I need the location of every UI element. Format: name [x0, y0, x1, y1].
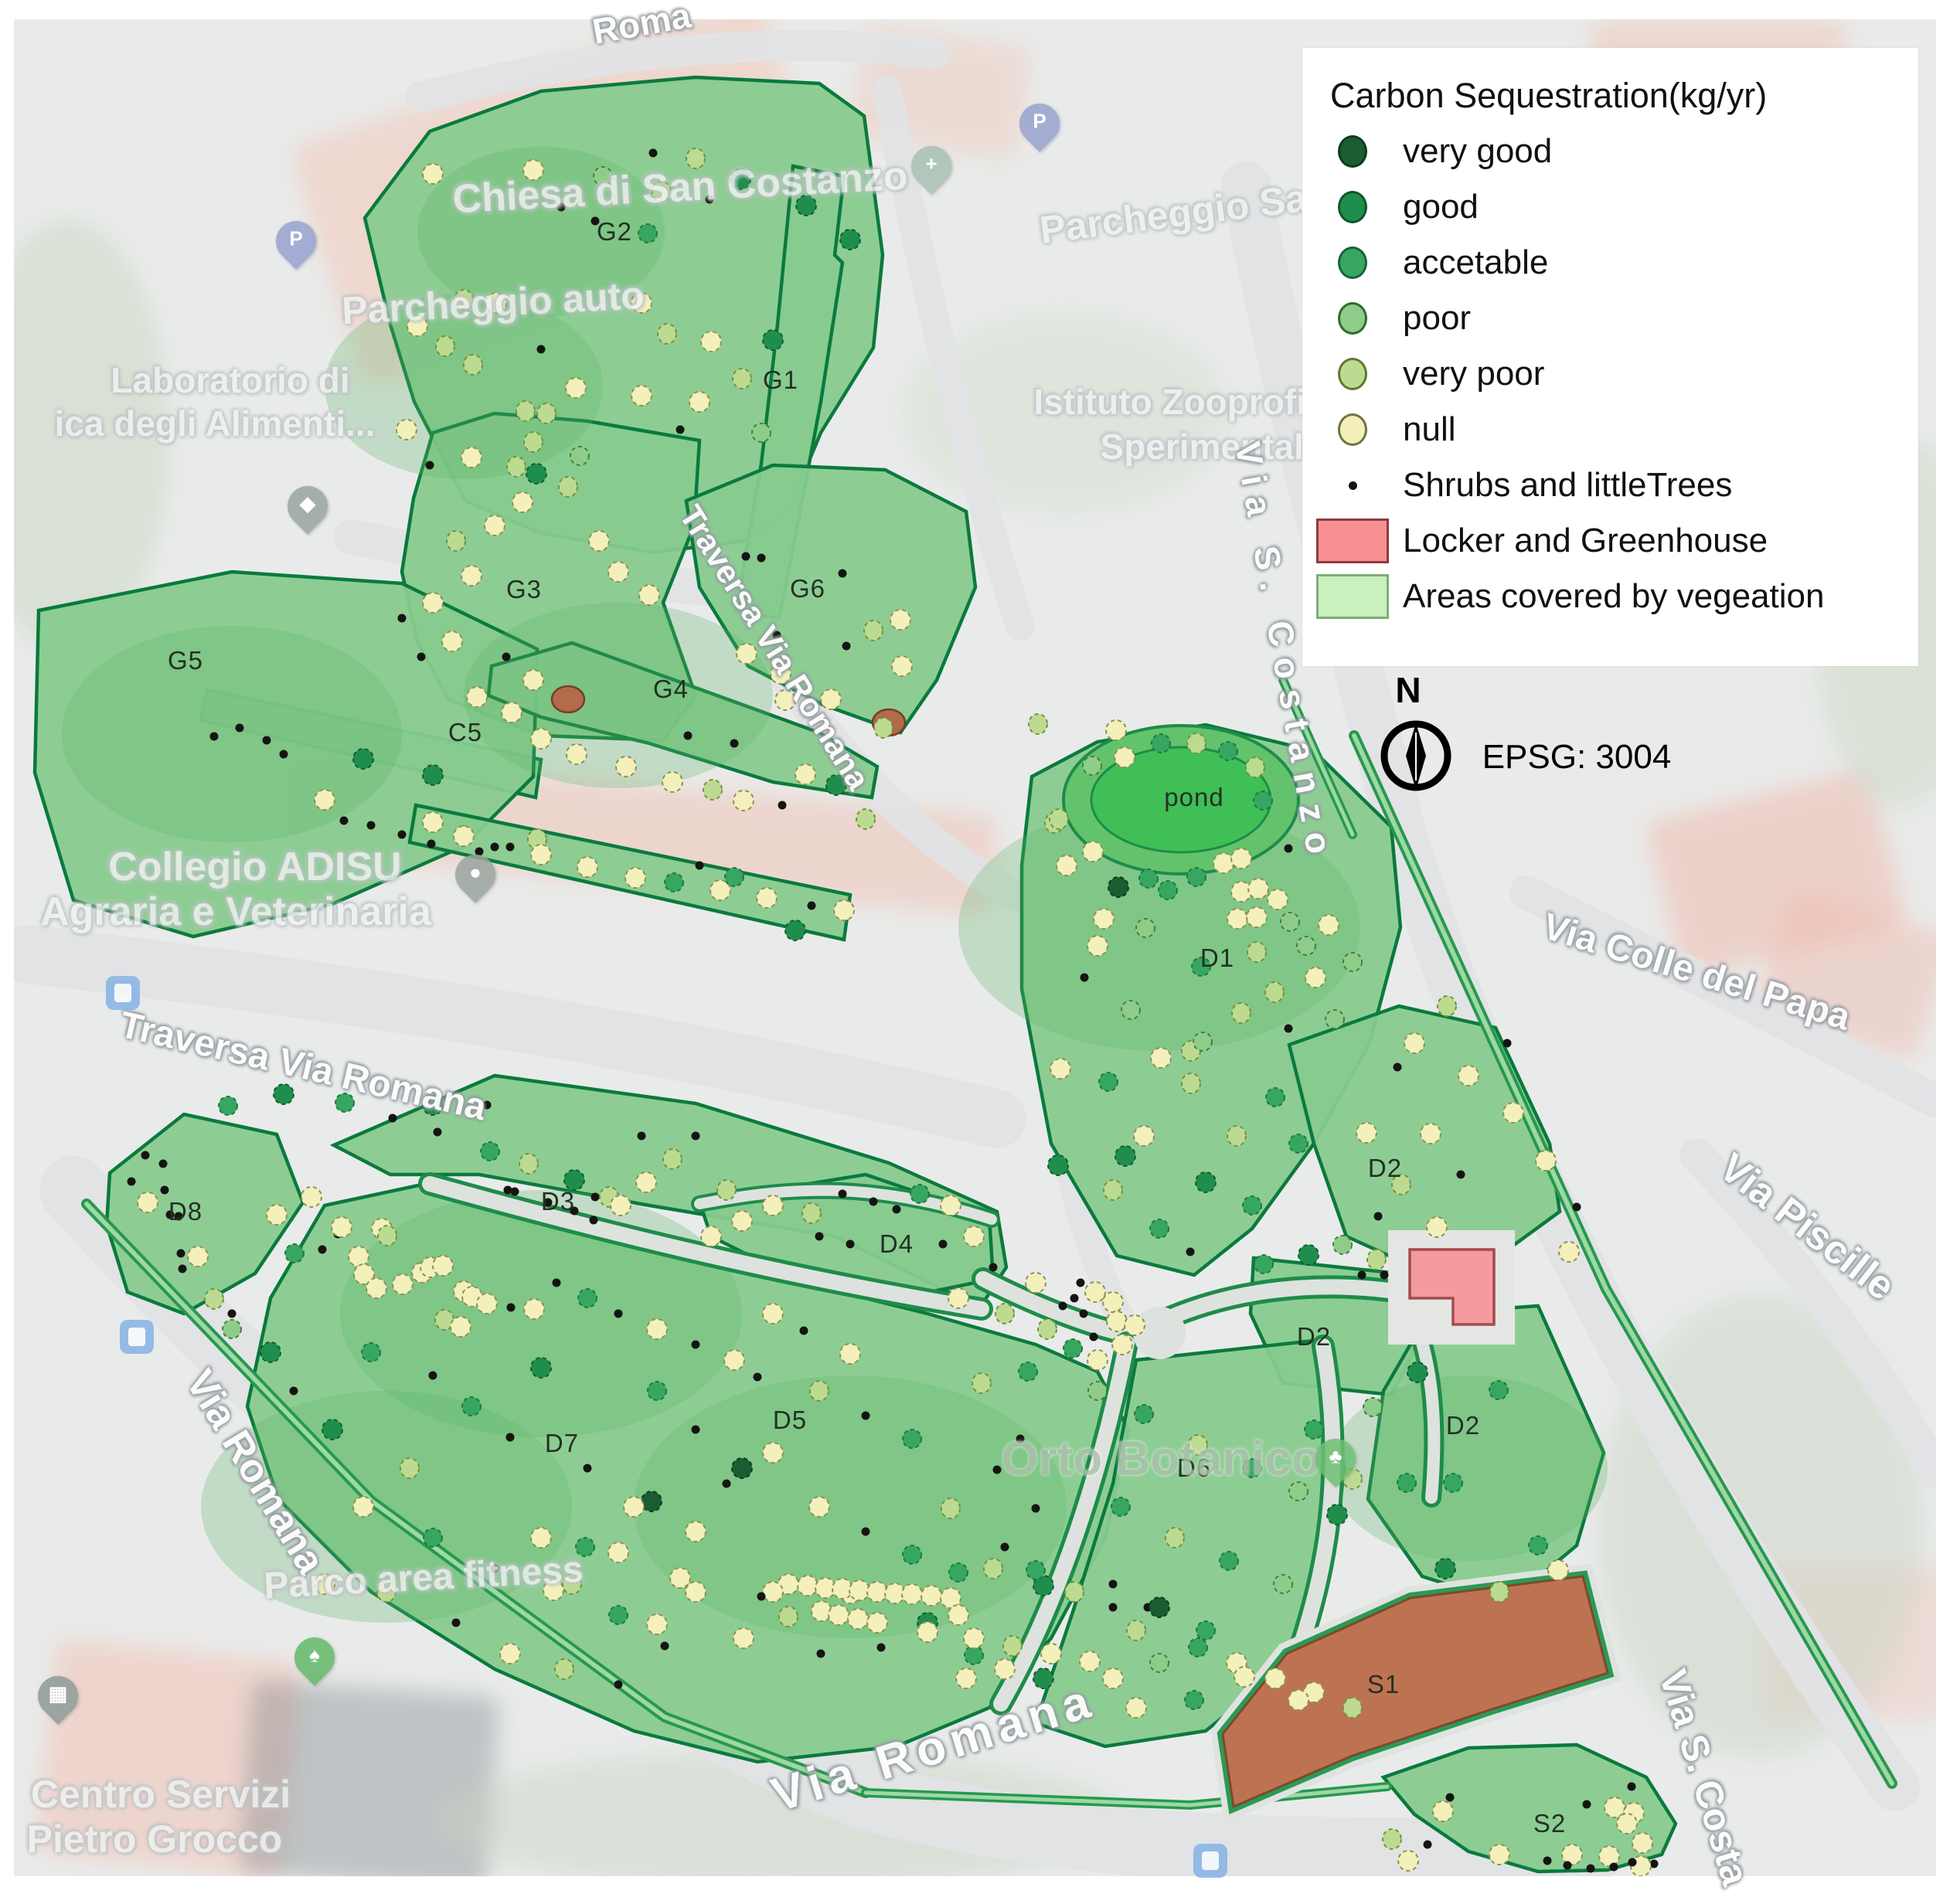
tree-null: [353, 1497, 373, 1517]
shrub-littletree: [877, 1644, 886, 1652]
tree-very-poor: [1029, 714, 1047, 734]
tree-null: [315, 790, 335, 810]
region-label-D1: D1: [1200, 943, 1234, 973]
tree-poor: [752, 423, 771, 442]
tree-very-poor: [524, 432, 543, 452]
shrub-littletree: [590, 1216, 598, 1225]
tree-null: [701, 331, 721, 352]
poi-green-pin-icon: ♣: [1315, 1439, 1356, 1479]
tree-accetable: [1196, 1621, 1215, 1640]
shrub-littletree: [1503, 1039, 1512, 1048]
tree-very-poor: [1166, 1528, 1184, 1548]
locker-symbol-icon: [1302, 518, 1403, 563]
epsg-label: EPSG: 3004: [1482, 738, 1672, 777]
tree-very-poor: [1265, 982, 1284, 1002]
tree-good: [1196, 1172, 1216, 1192]
tree-null: [625, 868, 645, 888]
tree-very-poor: [810, 1381, 829, 1401]
locker-greenhouse-building: [1388, 1230, 1515, 1345]
tree-very-good: [1108, 877, 1128, 897]
tree-good: [763, 330, 783, 350]
street-label: ica degli Alimenti...: [55, 403, 376, 444]
shrub-littletree: [692, 1132, 700, 1141]
tree-null: [1536, 1151, 1556, 1171]
tree-null: [267, 1205, 287, 1225]
tree-null: [442, 631, 462, 651]
tree-null: [890, 610, 910, 630]
shrub-littletree: [1573, 1203, 1581, 1212]
church-pin-icon: +: [911, 146, 951, 186]
region-label-G3: G3: [506, 575, 542, 604]
tree-null: [848, 1609, 868, 1629]
shrub-littletree: [427, 840, 436, 848]
tree-null: [477, 1294, 497, 1314]
shrub-littletree: [684, 732, 693, 740]
tree-null: [763, 1304, 783, 1324]
shrub-littletree: [614, 1681, 623, 1689]
shrub-littletree: [507, 1304, 516, 1312]
tree-good: [840, 229, 860, 250]
tree-null: [451, 1317, 471, 1337]
tree-very-poor: [1367, 1249, 1386, 1270]
tree-good: [1048, 1155, 1068, 1175]
transit-stop-icon: [1193, 1844, 1227, 1878]
road-via-piscille: [1696, 1155, 1936, 1472]
tree-null: [1087, 1350, 1108, 1370]
tree-null: [1103, 1292, 1123, 1312]
shrub-littletree: [800, 1327, 808, 1335]
shrub-littletree: [1109, 1580, 1118, 1589]
tree-accetable: [1219, 742, 1237, 760]
tree-null: [1115, 747, 1135, 767]
tree-accetable: [285, 1244, 304, 1263]
street-label: Sperimentale: [1101, 426, 1324, 467]
tree-accetable: [1529, 1536, 1547, 1555]
tree-very-good: [1149, 1597, 1169, 1617]
tree-null: [686, 1521, 706, 1542]
tree-very-poor: [1182, 1073, 1200, 1093]
street-label: Pietro Grocco: [27, 1817, 283, 1861]
tree-null: [941, 1195, 961, 1215]
legend-item-poor: poor: [1302, 291, 1918, 346]
tree-null: [917, 1622, 938, 1642]
tree-accetable: [481, 1142, 499, 1161]
shrub-littletree: [417, 653, 426, 661]
tree-very-poor: [205, 1289, 223, 1309]
tree-very-poor: [984, 1559, 1002, 1579]
shrub-littletree: [502, 653, 511, 661]
tree-null: [964, 1628, 984, 1648]
tree-poor: [1274, 1575, 1292, 1593]
tree-very-poor: [1490, 1582, 1509, 1602]
tree-accetable: [219, 1096, 237, 1115]
region-label-S2: S2: [1533, 1809, 1566, 1838]
tree-very-poor: [555, 1659, 573, 1679]
tree-null: [1213, 853, 1234, 873]
shrub-littletree: [290, 1387, 298, 1396]
street-label: Agraria e Veterinaria: [40, 889, 431, 935]
tree-accetable: [1019, 1362, 1037, 1381]
tree-null: [1125, 1315, 1145, 1335]
shrub-littletree: [236, 724, 244, 733]
tree-poor: [1083, 756, 1101, 775]
tree-very-poor: [1227, 1126, 1246, 1146]
street-label: Laboratorio di: [111, 359, 349, 401]
region-label-G2: G2: [597, 217, 632, 246]
tree-null: [608, 1542, 628, 1562]
tree-null: [1234, 1667, 1254, 1687]
tree-null: [1050, 1059, 1070, 1079]
tree-null: [763, 1582, 783, 1602]
tree-null: [647, 1319, 667, 1339]
tree-very-poor: [464, 355, 482, 375]
street-label: Istituto Zooprofil: [1033, 381, 1315, 423]
tree-null: [1319, 915, 1339, 935]
tree-very-poor: [519, 1154, 538, 1174]
shrub-littletree: [862, 1528, 870, 1536]
tree-null: [921, 1586, 941, 1606]
tree-null: [1080, 1651, 1100, 1671]
tree-null: [188, 1246, 208, 1266]
tree-good: [1435, 1559, 1455, 1579]
parking-pin-icon: P: [276, 221, 316, 261]
tree-very-poor: [1187, 733, 1206, 753]
shrub-littletree: [754, 1373, 762, 1382]
tree-very-poor: [856, 809, 875, 829]
tree-null: [423, 593, 443, 613]
tree-null: [1107, 1311, 1127, 1331]
tree-null: [1288, 1690, 1309, 1710]
tree-null: [1599, 1846, 1619, 1866]
tree-null: [1562, 1844, 1582, 1865]
shrub-littletree: [1070, 1294, 1079, 1303]
shrub-littletree: [1610, 1863, 1618, 1872]
tree-very-poor: [447, 531, 465, 551]
shrub-littletree: [161, 1186, 169, 1195]
shrub-littletree: [1285, 1025, 1293, 1033]
shrub-littletree: [280, 750, 288, 759]
tree-null: [867, 1613, 887, 1633]
region-label-pond: pond: [1164, 783, 1223, 812]
shrub-littletree: [1077, 1279, 1085, 1287]
shrub-littletree: [389, 1114, 397, 1123]
tree-null: [301, 1187, 322, 1207]
tree-null: [1112, 1334, 1132, 1355]
legend-item-very-poor: very poor: [1302, 346, 1918, 402]
tree-null: [577, 857, 597, 877]
tree-null: [849, 1580, 870, 1600]
tree-null: [454, 826, 474, 846]
tree-null: [631, 386, 652, 406]
shrub-littletree: [504, 1186, 512, 1195]
tree-null: [829, 1605, 849, 1625]
tree-good: [1327, 1504, 1347, 1525]
tree-very-good: [732, 1458, 752, 1478]
shrub-littletree: [1285, 845, 1293, 853]
tree-very-poor: [436, 336, 454, 356]
tree-null: [733, 790, 754, 811]
tree-good: [260, 1342, 281, 1362]
tree-null: [834, 900, 854, 920]
legend-item-accetable: accetable: [1302, 235, 1918, 291]
tree-null: [467, 687, 487, 707]
tree-null: [670, 1568, 690, 1588]
tree-good: [1298, 1245, 1319, 1265]
tree-null: [892, 656, 912, 676]
tree-null: [1489, 1844, 1509, 1865]
shrub-littletree: [692, 1426, 700, 1434]
legend-items: very goodgoodaccetablepoorvery poornullS…: [1302, 124, 1918, 624]
transit-stop-icon: [120, 1320, 154, 1354]
region-label-G4: G4: [653, 675, 689, 704]
shrub-littletree: [426, 461, 434, 470]
shrub-littletree: [398, 831, 407, 839]
tree-null: [1026, 1273, 1046, 1293]
tree-null: [1057, 855, 1077, 875]
shrub-littletree: [179, 1265, 187, 1273]
tree-null: [624, 1497, 644, 1517]
tree-very-poor: [1038, 1319, 1057, 1339]
tree-accetable: [362, 1343, 380, 1362]
tree-null: [1248, 879, 1268, 899]
region-label-C5: C5: [448, 718, 482, 747]
shrub-littletree: [893, 1205, 901, 1214]
tree-null: [1458, 1066, 1479, 1086]
tree-null: [393, 1274, 413, 1294]
shrub-littletree: [506, 1433, 515, 1442]
tree-null: [732, 1211, 752, 1231]
tree-accetable: [1189, 1638, 1207, 1657]
tree-very-poor: [802, 1203, 821, 1223]
accetable-symbol-icon: [1302, 246, 1403, 279]
tree-null: [485, 515, 505, 535]
tree-null: [1305, 967, 1326, 988]
tree-accetable: [1111, 1498, 1130, 1516]
tree-poor: [1281, 913, 1299, 931]
shrub-littletree: [1374, 1212, 1383, 1221]
shrub-littletree: [614, 1310, 623, 1318]
legend: Carbon Sequestration(kg/yr) very goodgoo…: [1302, 48, 1918, 666]
tree-poor: [570, 447, 589, 465]
shrub-littletree: [1059, 1302, 1067, 1311]
tree-null: [396, 420, 417, 440]
good-symbol-icon: [1302, 191, 1403, 223]
region-label-D2: D2: [1297, 1322, 1331, 1351]
shrub-littletree: [1001, 1543, 1009, 1552]
tree-pin-icon: ♠: [294, 1637, 335, 1678]
tree-null: [757, 888, 777, 908]
tree-accetable: [1185, 1691, 1203, 1709]
shrubs-symbol-icon: [1302, 481, 1403, 490]
tree-very-poor: [1003, 1636, 1022, 1656]
tree-very-poor: [941, 1498, 960, 1518]
tree-null: [1559, 1242, 1579, 1262]
tree-accetable: [725, 868, 744, 886]
tree-accetable: [1266, 1088, 1285, 1107]
shrub-littletree: [870, 1198, 878, 1206]
legend-title: Carbon Sequestration(kg/yr): [1330, 76, 1918, 116]
tree-null: [1247, 907, 1267, 927]
shrub-littletree: [939, 1240, 948, 1249]
shrub-littletree: [1628, 1783, 1636, 1791]
shrub-littletree: [649, 149, 658, 158]
tree-accetable: [903, 1545, 921, 1564]
tree-null: [689, 392, 710, 412]
shrub-littletree: [1358, 1271, 1366, 1280]
tree-accetable: [462, 1397, 481, 1416]
tree-very-poor: [507, 457, 526, 477]
shrub-littletree: [429, 1372, 437, 1380]
shrub-littletree: [1628, 1858, 1637, 1867]
tree-good: [1115, 1146, 1135, 1166]
tree-null: [1433, 1801, 1453, 1821]
tree-null: [763, 1195, 783, 1215]
tree-poor: [1136, 919, 1155, 937]
shrub-littletree: [318, 1246, 327, 1254]
tree-accetable: [1444, 1474, 1462, 1492]
tree-null: [423, 164, 443, 184]
shrub-littletree: [1457, 1171, 1465, 1179]
tree-poor: [1343, 953, 1362, 971]
tree-null: [995, 1659, 1015, 1679]
tree-null: [1265, 1668, 1285, 1688]
vegetation-texture: [62, 626, 402, 842]
shrub-littletree: [817, 1650, 825, 1658]
tree-null: [1268, 889, 1288, 909]
tree-very-poor: [1383, 1829, 1401, 1849]
tree-null: [1094, 909, 1114, 929]
tree-null: [1106, 720, 1126, 740]
shrub-littletree: [537, 345, 546, 354]
shrub-littletree: [367, 821, 376, 830]
tree-very-poor: [1438, 996, 1456, 1016]
shrub-littletree: [452, 1619, 461, 1627]
tree-null: [608, 562, 628, 582]
shrub-littletree: [228, 1310, 237, 1318]
tree-accetable: [1187, 868, 1206, 886]
shrub-littletree: [177, 1249, 185, 1258]
shrub-littletree: [1186, 1248, 1195, 1256]
tree-very-poor: [663, 1149, 682, 1169]
tree-null: [1126, 1698, 1146, 1718]
tree-very-poor: [1246, 757, 1264, 777]
tree-null: [1404, 1033, 1424, 1053]
shrub-littletree: [723, 1480, 731, 1488]
tree-null: [1421, 1124, 1441, 1144]
tree-null: [964, 1226, 984, 1246]
place-pin-icon: ●: [455, 855, 495, 895]
region-label-D2: D2: [1446, 1411, 1480, 1440]
tree-accetable: [1397, 1474, 1416, 1492]
tree-null: [531, 1528, 551, 1548]
region-label-S1: S1: [1367, 1670, 1400, 1699]
tree-very-poor: [1127, 1620, 1145, 1640]
tree-null: [686, 1582, 706, 1602]
region-label-D7: D7: [545, 1429, 579, 1458]
tree-accetable: [665, 873, 683, 892]
shrub-littletree: [1583, 1800, 1591, 1809]
map-figure: G2G1G3G5C5G6G4pondD1D2D2D2D3D4D5D7D8D6S1…: [0, 0, 1950, 1904]
shrub-littletree: [1090, 1333, 1098, 1341]
shrub-littletree: [553, 1279, 561, 1287]
tree-null: [662, 772, 682, 792]
tree-null: [902, 1584, 922, 1604]
tree-null: [1151, 1048, 1171, 1068]
shrub-littletree: [128, 1178, 136, 1186]
shrub-littletree: [730, 739, 739, 748]
tree-good: [531, 1358, 551, 1378]
tree-null: [1356, 1123, 1377, 1143]
tree-accetable: [1254, 791, 1272, 810]
legend-item-label: Locker and Greenhouse: [1403, 522, 1768, 560]
tree-null: [531, 845, 551, 865]
tree-very-poor: [972, 1373, 991, 1393]
tree-null: [1103, 1668, 1123, 1688]
tree-accetable: [1139, 869, 1158, 888]
tree-good: [785, 920, 805, 940]
legend-item-label: Shrubs and littleTrees: [1403, 466, 1732, 505]
tree-null: [832, 1579, 852, 1599]
tree-null: [524, 1299, 544, 1319]
parking-pin-icon: P: [1019, 104, 1060, 144]
tree-null: [1087, 936, 1108, 956]
tree-null: [840, 1344, 860, 1364]
tree-null: [639, 585, 659, 605]
tree-good: [526, 464, 546, 484]
shrub-littletree: [742, 552, 750, 561]
tree-null: [589, 531, 609, 551]
tree-null: [948, 1605, 968, 1625]
shrub-littletree: [815, 1232, 824, 1241]
tree-null: [1134, 1126, 1154, 1146]
shrub-littletree: [1564, 1861, 1572, 1870]
tree-null: [523, 670, 543, 690]
tree-null: [349, 1246, 369, 1266]
tree-very-poor: [559, 477, 577, 497]
region-label-D2: D2: [1368, 1154, 1402, 1183]
shrub-littletree: [862, 1412, 870, 1420]
tree-accetable: [910, 1185, 929, 1203]
tree-null: [512, 492, 533, 512]
tree-null: [724, 1350, 744, 1370]
legend-item-very-good: very good: [1302, 124, 1918, 179]
tree-null: [1548, 1560, 1568, 1580]
shrub-littletree: [141, 1151, 150, 1160]
tree-poor: [1088, 1382, 1107, 1400]
tree-accetable: [1150, 1219, 1169, 1238]
tree-null: [423, 812, 443, 832]
tree-null: [566, 378, 586, 398]
shrub-littletree: [1543, 1857, 1552, 1865]
region-label-D3: D3: [541, 1187, 575, 1216]
tree-null: [948, 1288, 968, 1308]
shrub-littletree: [506, 843, 515, 852]
street-label: Collegio ADISU: [108, 844, 401, 890]
null-symbol-icon: [1302, 413, 1403, 446]
shrub-littletree: [846, 1240, 855, 1249]
tree-null: [1231, 848, 1251, 869]
tree-null: [733, 1628, 754, 1648]
shrub-littletree: [210, 733, 219, 741]
tree-null: [138, 1192, 158, 1212]
tree-null: [636, 1172, 656, 1192]
shrub-littletree: [696, 862, 704, 870]
tree-very-poor: [537, 403, 556, 423]
vegetation-symbol-icon: [1302, 574, 1403, 619]
tree-null: [461, 566, 482, 586]
museum-pin-icon: ▦: [38, 1676, 78, 1716]
tree-very-good: [641, 1491, 662, 1511]
